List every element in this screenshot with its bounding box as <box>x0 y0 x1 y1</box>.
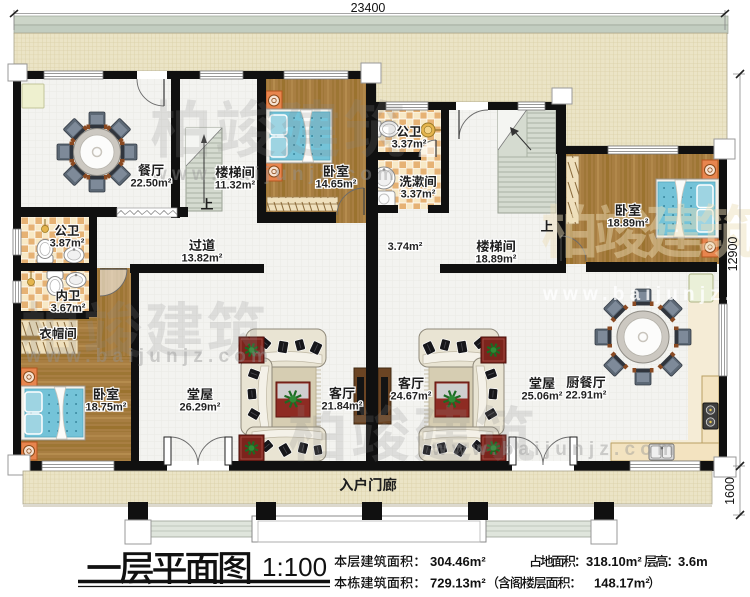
svg-text:www.baijunjz.com: www.baijunjz.com <box>151 164 399 185</box>
svg-text:3.6m: 3.6m <box>678 554 708 569</box>
svg-text:18.75m²: 18.75m² <box>86 402 127 414</box>
svg-text:23400: 23400 <box>351 1 386 15</box>
svg-text:www.baijunjz.com: www.baijunjz.com <box>542 284 750 305</box>
svg-text:26.29m²: 26.29m² <box>180 402 221 414</box>
svg-text:21.84m²: 21.84m² <box>322 401 363 413</box>
svg-text:3.37m²: 3.37m² <box>392 139 427 151</box>
svg-text:318.10m²: 318.10m² <box>586 554 642 569</box>
svg-text:www.baijunjz.com: www.baijunjz.com <box>25 346 273 367</box>
svg-text:12900: 12900 <box>726 237 740 272</box>
svg-text:11.32m²: 11.32m² <box>215 180 256 192</box>
svg-text:22.91m²: 22.91m² <box>566 390 607 402</box>
svg-text:1600: 1600 <box>723 477 737 505</box>
svg-text:1:100: 1:100 <box>262 552 327 582</box>
svg-text:18.89m²: 18.89m² <box>608 218 649 230</box>
svg-text:3.67m²: 3.67m² <box>51 303 86 315</box>
svg-text:www.baijunjz.com: www.baijunjz.com <box>431 439 679 460</box>
svg-text:25.06m²: 25.06m² <box>522 391 563 403</box>
svg-text:14.65m²: 14.65m² <box>316 179 357 191</box>
svg-text:18.89m²: 18.89m² <box>476 254 517 266</box>
svg-text:148.17m²: 148.17m² <box>594 576 650 591</box>
svg-text:3.37m²: 3.37m² <box>401 189 436 201</box>
svg-text:13.82m²: 13.82m² <box>182 253 223 265</box>
svg-text:3.74m²: 3.74m² <box>388 241 423 253</box>
svg-text:24.67m²: 24.67m² <box>391 391 432 403</box>
svg-text:3.87m²: 3.87m² <box>50 238 85 250</box>
svg-text:304.46m²: 304.46m² <box>430 554 486 569</box>
svg-text:22.50m²: 22.50m² <box>131 178 172 190</box>
svg-text:729.13m²: 729.13m² <box>430 576 486 591</box>
